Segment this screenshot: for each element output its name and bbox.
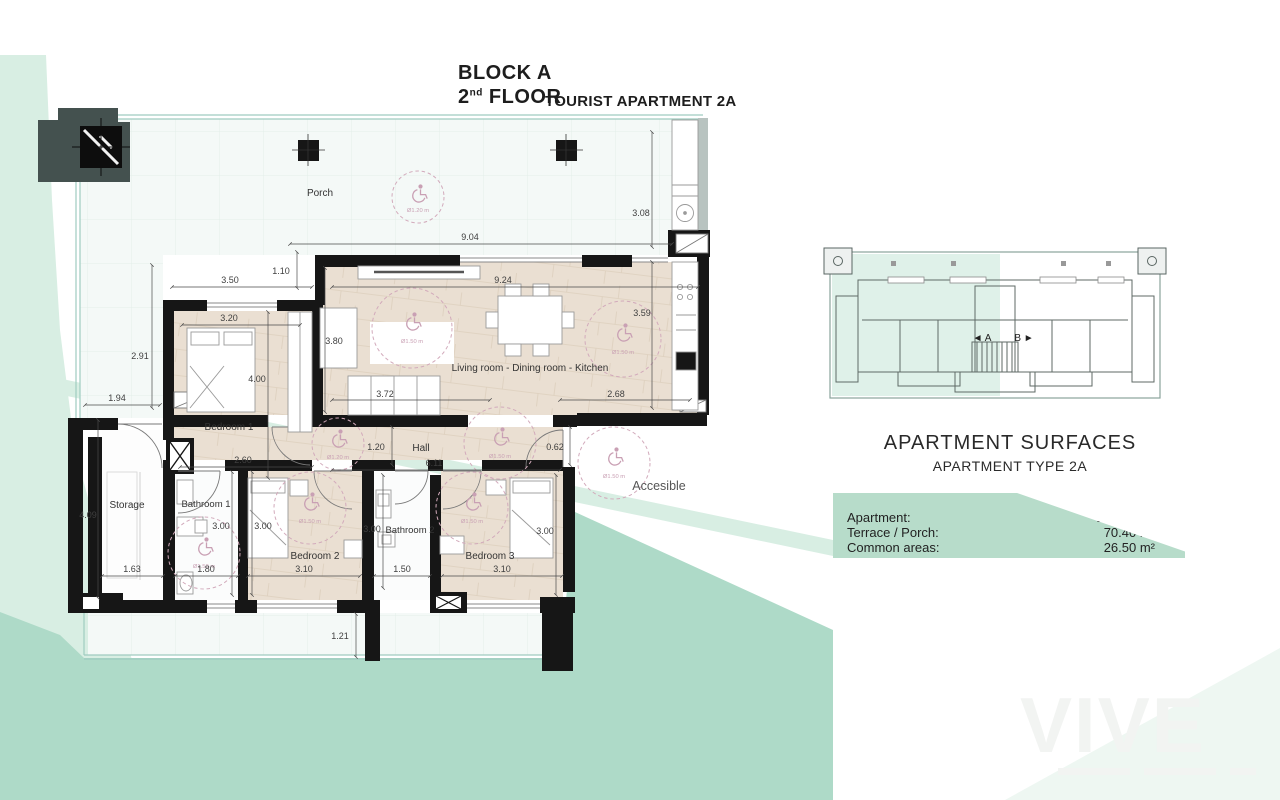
dim-label: 3.50 <box>221 275 239 285</box>
dim-label: 3.59 <box>633 308 651 318</box>
circle-label: Ø1.50 m <box>489 454 511 460</box>
watermark-bar <box>1058 768 1130 775</box>
circle-label: Ø1.50 m <box>612 350 634 356</box>
accessible-label: Accesible <box>632 479 686 493</box>
dim-label: 2.60 <box>234 455 252 465</box>
room-label-porch: Porch <box>307 188 333 199</box>
overview-plan: ◄ A B ► <box>824 248 1166 398</box>
dim-label: 1.80 <box>197 564 215 574</box>
room-label-bedroom2: Bedroom 2 <box>291 551 340 562</box>
dim-label: 1.20 <box>367 442 385 452</box>
dim-label: 3.00 <box>536 526 554 536</box>
corner-column-block <box>38 108 130 182</box>
dim-label: 3.00 <box>363 524 381 534</box>
room-label-bedroom1: Bedroom 1 <box>205 422 254 433</box>
dim-label: 3.10 <box>493 564 511 574</box>
room-label-bedroom3: Bedroom 3 <box>466 551 515 562</box>
overview-label-a: ◄ A <box>973 333 992 344</box>
watermark-subline <box>1058 768 1256 775</box>
room-label-bathroom1: Bathroom 1 <box>181 499 230 510</box>
dim-label: 9.24 <box>494 275 512 285</box>
circle-label: Ø1.50 m <box>299 519 321 525</box>
dim-label: 1.10 <box>272 266 290 276</box>
surfaces-row: Common areas: 26.50 m² <box>833 540 1185 555</box>
dim-label: 2.68 <box>607 389 625 399</box>
dim-label: 1.94 <box>108 393 126 403</box>
overview-label-b: B ► <box>1014 333 1033 344</box>
dim-label: 3.00 <box>212 521 230 531</box>
dim-label: 9.04 <box>461 232 479 242</box>
floor-plan-page: Ø1.20 m Ø1.50 m Ø1.50 m Ø1.50 m Ø1.20 m … <box>0 0 1280 800</box>
dim-label: 3.00 <box>254 521 272 531</box>
circle-label: Ø1.20 m <box>327 455 349 461</box>
dim-label: 1.63 <box>123 564 141 574</box>
block-title: BLOCK A <box>458 62 561 85</box>
dim-label: 4.00 <box>248 374 266 384</box>
room-label-storage: Storage <box>109 500 144 511</box>
dim-label: 1.50 <box>393 564 411 574</box>
dim-label: 3.08 <box>632 208 650 218</box>
surface-value: 26.50 m² <box>1104 540 1155 555</box>
watermark-bar <box>1230 768 1256 775</box>
dim-label: 6.11 <box>426 458 443 468</box>
wheelchair-icon <box>609 447 623 465</box>
dim-label: 2.91 <box>131 351 149 361</box>
surfaces-subtitle: APARTMENT TYPE 2A <box>820 458 1200 474</box>
dim-label: 3.80 <box>325 336 343 346</box>
room-label-bathroom2: Bathroom 2 <box>385 525 434 536</box>
surfaces-header: APARTMENT SURFACES APARTMENT TYPE 2A <box>820 432 1200 474</box>
dim-label: 0.62 <box>546 442 564 452</box>
circle-label: Ø1.20 m <box>407 208 429 214</box>
circle-label: Ø1.50 m <box>401 339 423 345</box>
dim-label: 3.72 <box>376 389 394 399</box>
dim-label: 3.20 <box>220 313 238 323</box>
circle-label: Ø1.50 m <box>603 474 625 480</box>
apartment-title: TOURIST APARTMENT 2A <box>545 93 737 110</box>
room-label-living: Living room - Dining room - Kitchen <box>452 363 609 374</box>
surface-label: Common areas: <box>847 540 939 555</box>
watermark-bar <box>1144 768 1216 775</box>
dim-label: 1.21 <box>331 631 349 641</box>
dim-label: 3.10 <box>295 564 313 574</box>
surface-label: Terrace / Porch: <box>847 525 939 540</box>
surfaces-title: APARTMENT SURFACES <box>820 432 1200 455</box>
dim-label: 4.09 <box>79 510 97 520</box>
surface-label: Apartment: <box>847 510 911 525</box>
room-label-hall: Hall <box>412 443 429 454</box>
watermark: VIVE <box>1020 680 1206 771</box>
circle-label: Ø1.50 m <box>461 519 483 525</box>
